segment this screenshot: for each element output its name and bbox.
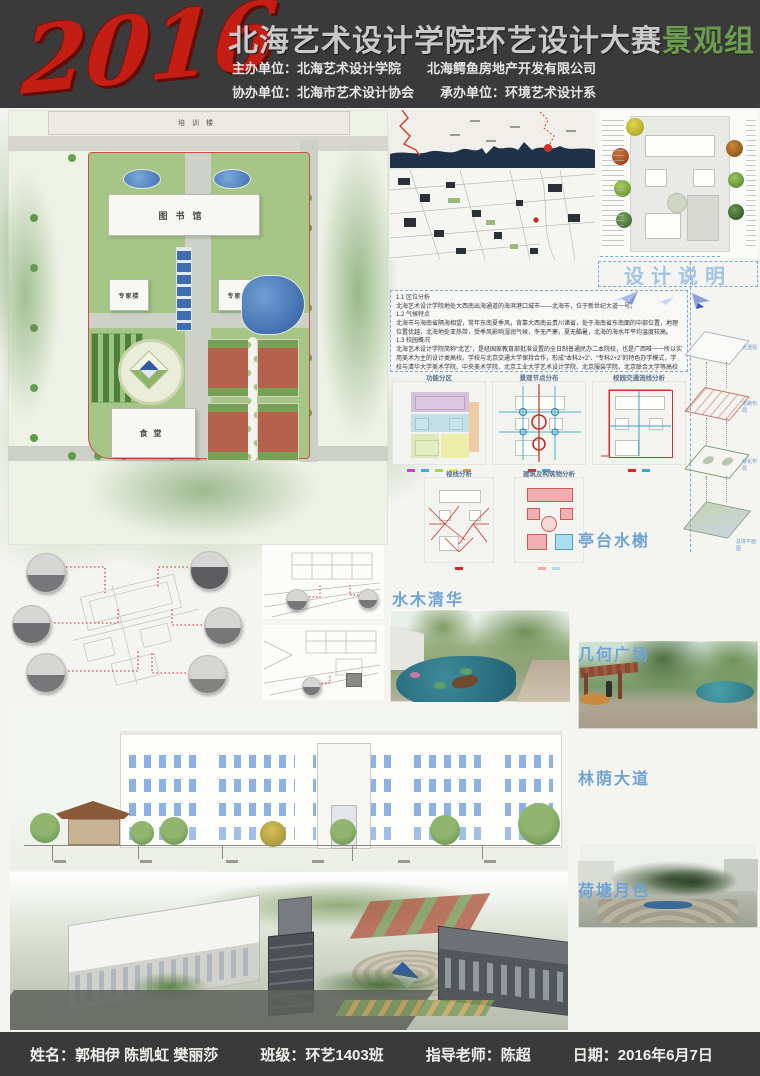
axon-layers: 大透视 道路布局 绿化布局 总体平面图 — [692, 328, 760, 554]
pond-small-left — [123, 169, 161, 189]
analysis-title-zoning: 功能分区 — [392, 372, 486, 381]
sketch2-inset-1 — [302, 677, 321, 696]
master-plan: 培训楼 图书馆 专家楼 专家楼 — [8, 110, 388, 545]
gallery-title-1: 亭台水榭 — [578, 527, 650, 551]
legend-chip — [407, 469, 415, 472]
region-map-svg — [390, 110, 595, 168]
legend-chip — [552, 567, 560, 570]
legend-chip — [538, 567, 546, 570]
city-map-svg — [390, 170, 595, 260]
legend-chip — [455, 567, 463, 570]
legend-traffic — [592, 467, 686, 474]
perspective-sketch-1 — [262, 545, 384, 619]
analysis-tile-structures: 建筑及构筑物分析 — [514, 468, 584, 572]
planting-notes-right — [746, 120, 756, 246]
footer-date: 日期：2016年6月7日 — [573, 1044, 713, 1065]
tree-species-orange — [726, 140, 743, 157]
tree-mass-left — [0, 170, 60, 420]
competition-poster: 2016 北海艺术设计学院环艺设计大赛景观组 主办单位：北海艺术设计学院 北海鳄… — [0, 0, 760, 1076]
library-label: 图书馆 — [158, 209, 209, 222]
header-bar: 2016 北海艺术设计学院环艺设计大赛景观组 主办单位：北海艺术设计学院 北海鳄… — [0, 0, 760, 108]
top-road — [8, 136, 388, 151]
perspective-sketch-2 — [262, 625, 384, 700]
axon-layer-roads — [684, 387, 749, 421]
plaza-diamond — [129, 350, 169, 390]
analysis-plan-zoning — [392, 381, 486, 465]
city-map — [390, 170, 595, 260]
axon-layer-perspective — [684, 331, 749, 365]
planting-notes-left — [602, 120, 624, 246]
tree-mass-right — [318, 140, 398, 440]
legend-structures — [514, 565, 584, 572]
gallery-title-3: 林荫大道 — [578, 765, 650, 789]
elevation-micro-labels — [54, 860, 534, 863]
analysis-title-traffic: 校园交通流线分析 — [592, 372, 686, 381]
training-building: 培训楼 — [48, 111, 350, 135]
tree-species-dark — [728, 204, 744, 220]
analysis-tile-traffic: 校园交通流线分析 — [592, 372, 686, 474]
design-notes-box: 1.1 区位分析 北海艺术设计学院地处大西南出海通道的海滨港口城市——北海市，位… — [390, 290, 688, 372]
footer-names: 姓名：郭相伊 陈凯虹 樊丽莎 — [30, 1044, 218, 1065]
elevation-pavilion — [56, 801, 130, 845]
expert-building-left: 专家楼 — [109, 279, 149, 311]
co-organizer: 协办单位：北海市艺术设计协会 — [232, 82, 414, 101]
training-building-label: 培训楼 — [178, 118, 220, 128]
street-tree-row — [68, 154, 76, 162]
campus-area: 图书馆 专家楼 专家楼 食堂 — [88, 152, 310, 459]
tree-species-green2 — [728, 172, 744, 188]
design-notes-title: 设计说明 — [599, 262, 757, 286]
footer-class: 班级：环艺1403班 — [260, 1044, 383, 1065]
organizer-line-2: 协办单位：北海市艺术设计协会 承办单位：环境艺术设计系 — [232, 82, 596, 101]
sketch1-inset-1 — [286, 589, 308, 611]
axon-layer-greenery — [684, 445, 749, 479]
tree-species-yellow — [626, 118, 644, 136]
elevation-ground-line — [24, 845, 560, 846]
axon-label-4: 总体平面图 — [736, 538, 760, 552]
squiggle-path — [248, 337, 257, 461]
court-2 — [257, 339, 299, 397]
planting-plan — [600, 110, 758, 258]
planting-plan-base — [630, 116, 730, 252]
canteen-building: 食堂 — [111, 408, 196, 458]
sketch2-inset-2 — [346, 673, 362, 687]
plaza-diamond-core — [140, 360, 158, 378]
court-3 — [207, 403, 249, 461]
undertaker: 承办单位：环境艺术设计系 — [440, 82, 596, 101]
host-unit: 主办单位：北海艺术设计学院 — [232, 58, 401, 77]
sketch1-inset-2 — [358, 589, 378, 609]
footer-bar: 姓名：郭相伊 陈凯虹 樊丽莎 班级：环艺1403班 指导老师：陈超 日期：201… — [0, 1032, 760, 1076]
site-photo-inset-5 — [204, 607, 242, 645]
legend-chip — [642, 469, 650, 472]
legend-sight — [424, 565, 494, 572]
court-4 — [257, 403, 299, 461]
pond-small-right — [213, 169, 251, 189]
site-photo-inset-4 — [190, 551, 229, 590]
analysis-title-structures: 建筑及构筑物分析 — [514, 468, 584, 477]
region-map — [390, 110, 595, 168]
axon-label-1: 大透视 — [742, 344, 757, 351]
footer-teacher: 指导老师：陈超 — [426, 1044, 531, 1065]
central-canal — [176, 247, 192, 331]
analysis-tile-zoning: 功能分区 — [392, 372, 486, 474]
aerial-view — [10, 872, 568, 1030]
sketch-analysis-band — [10, 545, 260, 700]
divider-dashed-h — [600, 256, 720, 257]
organizer-line-1: 主办单位：北海艺术设计学院 北海鳄鱼房地产开发有限公司 — [232, 58, 596, 77]
analysis-plan-sight — [424, 477, 494, 563]
library-building: 图书馆 — [108, 194, 260, 236]
design-notes-title-box: 设计说明 — [598, 261, 758, 287]
gallery-title-2: 几何广场 — [578, 641, 650, 665]
poster-title: 北海艺术设计学院环艺设计大赛景观组 — [228, 16, 755, 60]
expert-left-label: 专家楼 — [118, 291, 139, 300]
site-photo-inset-6 — [188, 655, 227, 694]
design-notes-text: 1.1 区位分析 北海艺术设计学院地处大西南出海通道的海滨港口城市——北海市，位… — [391, 291, 687, 371]
poster-title-main: 北海艺术设计学院环艺设计大赛 — [228, 25, 662, 58]
analysis-plan-traffic — [592, 381, 686, 465]
court-1 — [207, 339, 249, 397]
axon-label-2: 道路布局 — [742, 400, 760, 414]
host-unit-2: 北海鳄鱼房地产开发有限公司 — [427, 58, 596, 77]
axon-layer-masterplan — [683, 501, 751, 538]
diamond-plaza — [118, 339, 184, 405]
canteen-label: 食堂 — [140, 428, 168, 439]
shuimu-photo — [390, 610, 570, 702]
legend-chip — [628, 469, 636, 472]
poster-title-group: 景观组 — [662, 25, 755, 58]
axon-label-3: 绿化布局 — [742, 458, 760, 472]
analysis-plan-structures — [514, 477, 584, 563]
analysis-plan-nodes — [492, 381, 586, 465]
site-photo-inset-1 — [26, 553, 66, 593]
analysis-title-sight: 视线分析 — [424, 468, 494, 477]
elevation-drawing — [10, 705, 568, 870]
site-photo-inset-3 — [26, 653, 66, 693]
shuimu-title: 水木清华 — [392, 586, 464, 610]
site-photo-inset-2 — [12, 605, 51, 644]
analysis-title-nodes: 景观节点分布 — [492, 372, 586, 381]
analysis-tile-nodes: 景观节点分布 — [492, 372, 586, 474]
gallery-title-4: 荷塘月色 — [578, 877, 650, 901]
analysis-tile-sight: 视线分析 — [424, 468, 494, 572]
